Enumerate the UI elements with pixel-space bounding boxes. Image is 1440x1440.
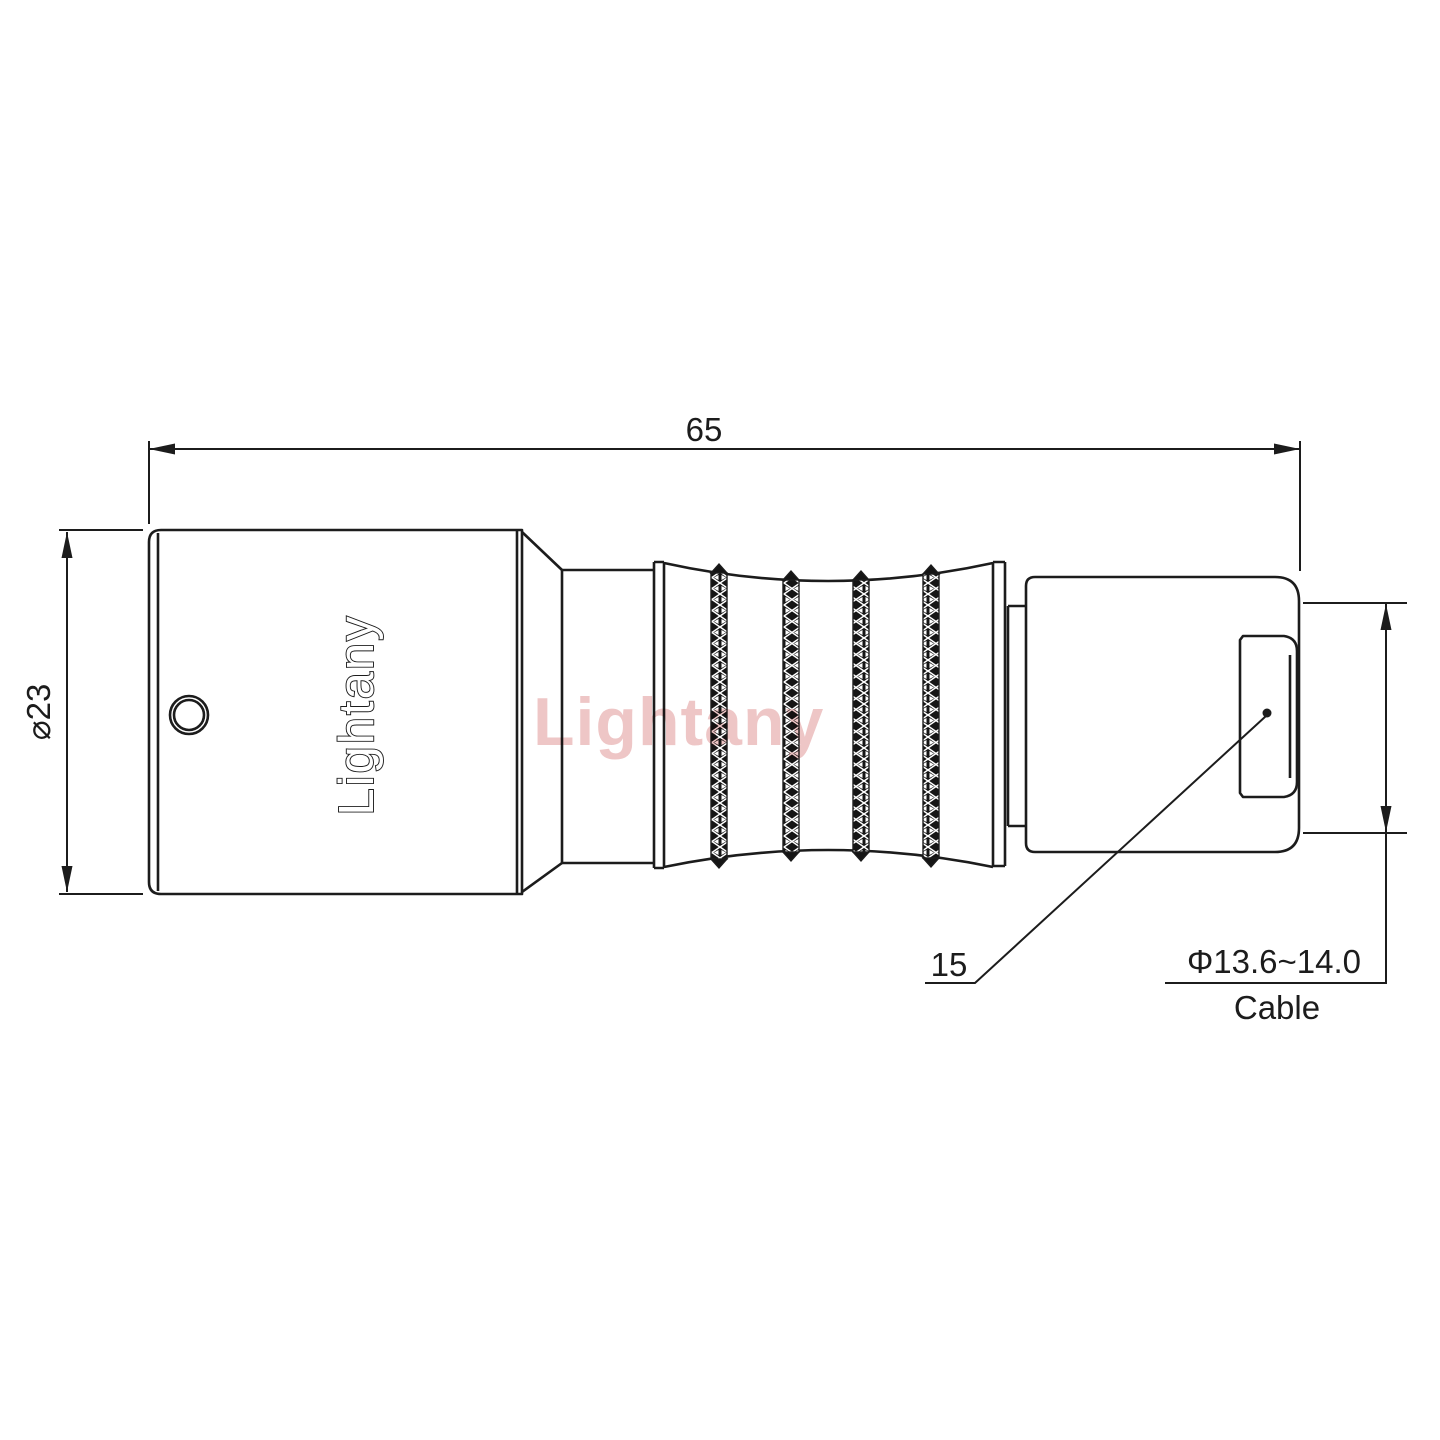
arrow-left-icon [149,444,175,455]
dim-65-extension-lines [149,441,1300,571]
knurl-band [853,571,869,861]
body-logo-text: Lightany [330,614,384,815]
arrow-up-icon [62,532,73,558]
dim-23-extension-lines [59,530,143,894]
dimension-lines-group [59,441,1407,983]
dim-nut-length-label: 15 [931,946,968,983]
arrow-up-icon [1381,604,1392,630]
knurl-left-ring [654,562,664,868]
dim-cable-extension-lines [1303,603,1407,833]
knurl-band [923,565,939,867]
chamfer-top-line [522,532,562,570]
cable-label: Cable [1234,989,1320,1026]
arrow-down-icon [62,866,73,892]
body-hole-outer [170,696,208,734]
dim-body-diameter-label: ⌀23 [20,684,57,741]
arrow-down-icon [1381,806,1392,832]
step-cylinder-outline [1008,606,1026,826]
neck-outline [562,570,654,863]
dim-cable-diameter-label: Φ13.6~14.0 [1187,943,1361,980]
chamfer-bottom-line [522,863,562,892]
knurl-band [783,571,799,861]
knurl-bands-group [711,564,939,868]
dim-overall-length-label: 65 [686,411,723,448]
knurl-band [711,564,727,868]
knurl-right-ring [993,562,1005,866]
technical-drawing-canvas: 65 ⌀23 15 Φ13.6~14.0 Cable Lightany Ligh… [0,0,1440,1440]
connector-drawing-svg: 65 ⌀23 15 Φ13.6~14.0 Cable Lightany [0,0,1440,1440]
arrow-right-icon [1274,444,1300,455]
leader-dot [1263,709,1272,718]
